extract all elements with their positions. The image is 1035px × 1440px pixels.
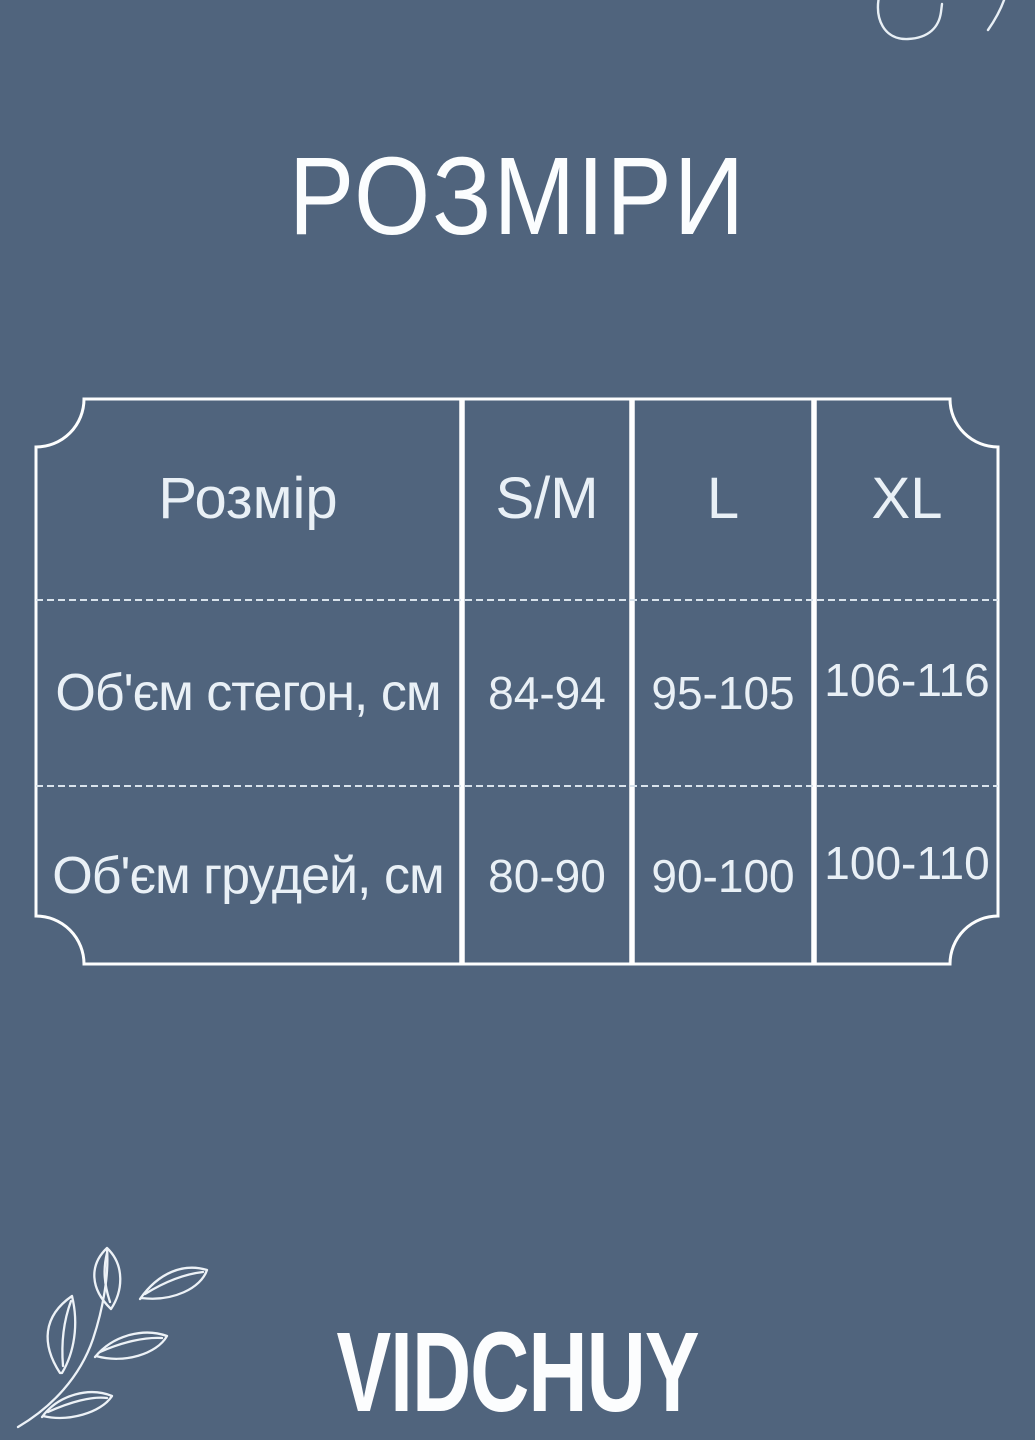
brand-logo: VIDCHUY — [0, 1317, 1035, 1430]
table-header-xl: XL — [814, 397, 1000, 600]
table-cell-chest-xl: 100-110 — [814, 786, 1000, 966]
table-header-size: Розмір — [34, 397, 462, 600]
cell-value: 84-94 — [488, 670, 606, 716]
row-label: Об'єм стегон, см — [55, 667, 440, 719]
table-cell-hips-xl: 106-116 — [814, 600, 1000, 786]
row-label: Об'єм грудей, см — [52, 850, 443, 902]
header-label: Розмір — [158, 470, 337, 528]
header-label: XL — [872, 470, 943, 528]
table-header-sm: S/M — [462, 397, 632, 600]
header-label: L — [707, 470, 739, 528]
cell-value: 100-110 — [824, 840, 989, 886]
cell-value: 95-105 — [651, 670, 794, 716]
table-cell-hips-sm: 84-94 — [462, 600, 632, 786]
table-row-hips-label: Об'єм стегон, см — [34, 600, 462, 786]
size-chart-card: РОЗМІРИ Розмір S/M L XL Об'єм стегон, см… — [0, 0, 1035, 1440]
cell-value: 106-116 — [824, 657, 989, 703]
page-title: РОЗМІРИ — [0, 140, 1035, 251]
header-label: S/M — [495, 470, 598, 528]
table-header-l: L — [632, 397, 814, 600]
cell-value: 80-90 — [488, 853, 606, 899]
size-table: Розмір S/M L XL Об'єм стегон, см 84-94 9… — [34, 397, 1000, 966]
table-cell-chest-sm: 80-90 — [462, 786, 632, 966]
cell-value: 90-100 — [651, 853, 794, 899]
table-cell-chest-l: 90-100 — [632, 786, 814, 966]
table-row-chest-label: Об'єм грудей, см — [34, 786, 462, 966]
table-cell-hips-l: 95-105 — [632, 600, 814, 786]
cropped-curve-motif-icon — [835, 0, 1035, 75]
